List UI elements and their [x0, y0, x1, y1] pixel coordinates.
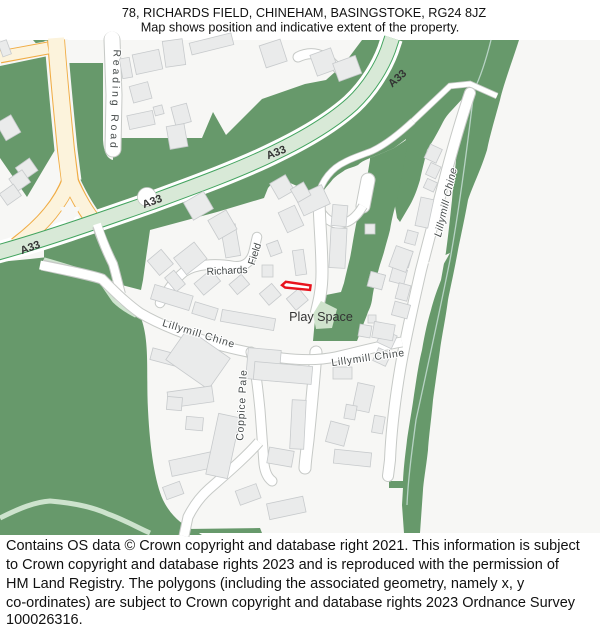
svg-text:co-ordinates) are subject to C: co-ordinates) are subject to Crown copyr… [6, 595, 576, 611]
svg-text:Play Space: Play Space [289, 310, 353, 324]
svg-text:Richards: Richards [206, 265, 248, 278]
svg-text:78, RICHARDS FIELD, CHINEHAM,: 78, RICHARDS FIELD, CHINEHAM, BASINGSTOK… [122, 6, 487, 20]
svg-text:HM Land Registry. The polygons: HM Land Registry. The polygons (includin… [6, 576, 525, 592]
svg-text:Map shows position and indicat: Map shows position and indicative extent… [141, 21, 460, 35]
svg-text:100026316.: 100026316. [6, 612, 83, 625]
svg-text:Contains OS data © Crown copyr: Contains OS data © Crown copyright and d… [6, 538, 580, 554]
svg-text:to Crown copyright and databas: to Crown copyright and database rights 2… [6, 557, 560, 573]
